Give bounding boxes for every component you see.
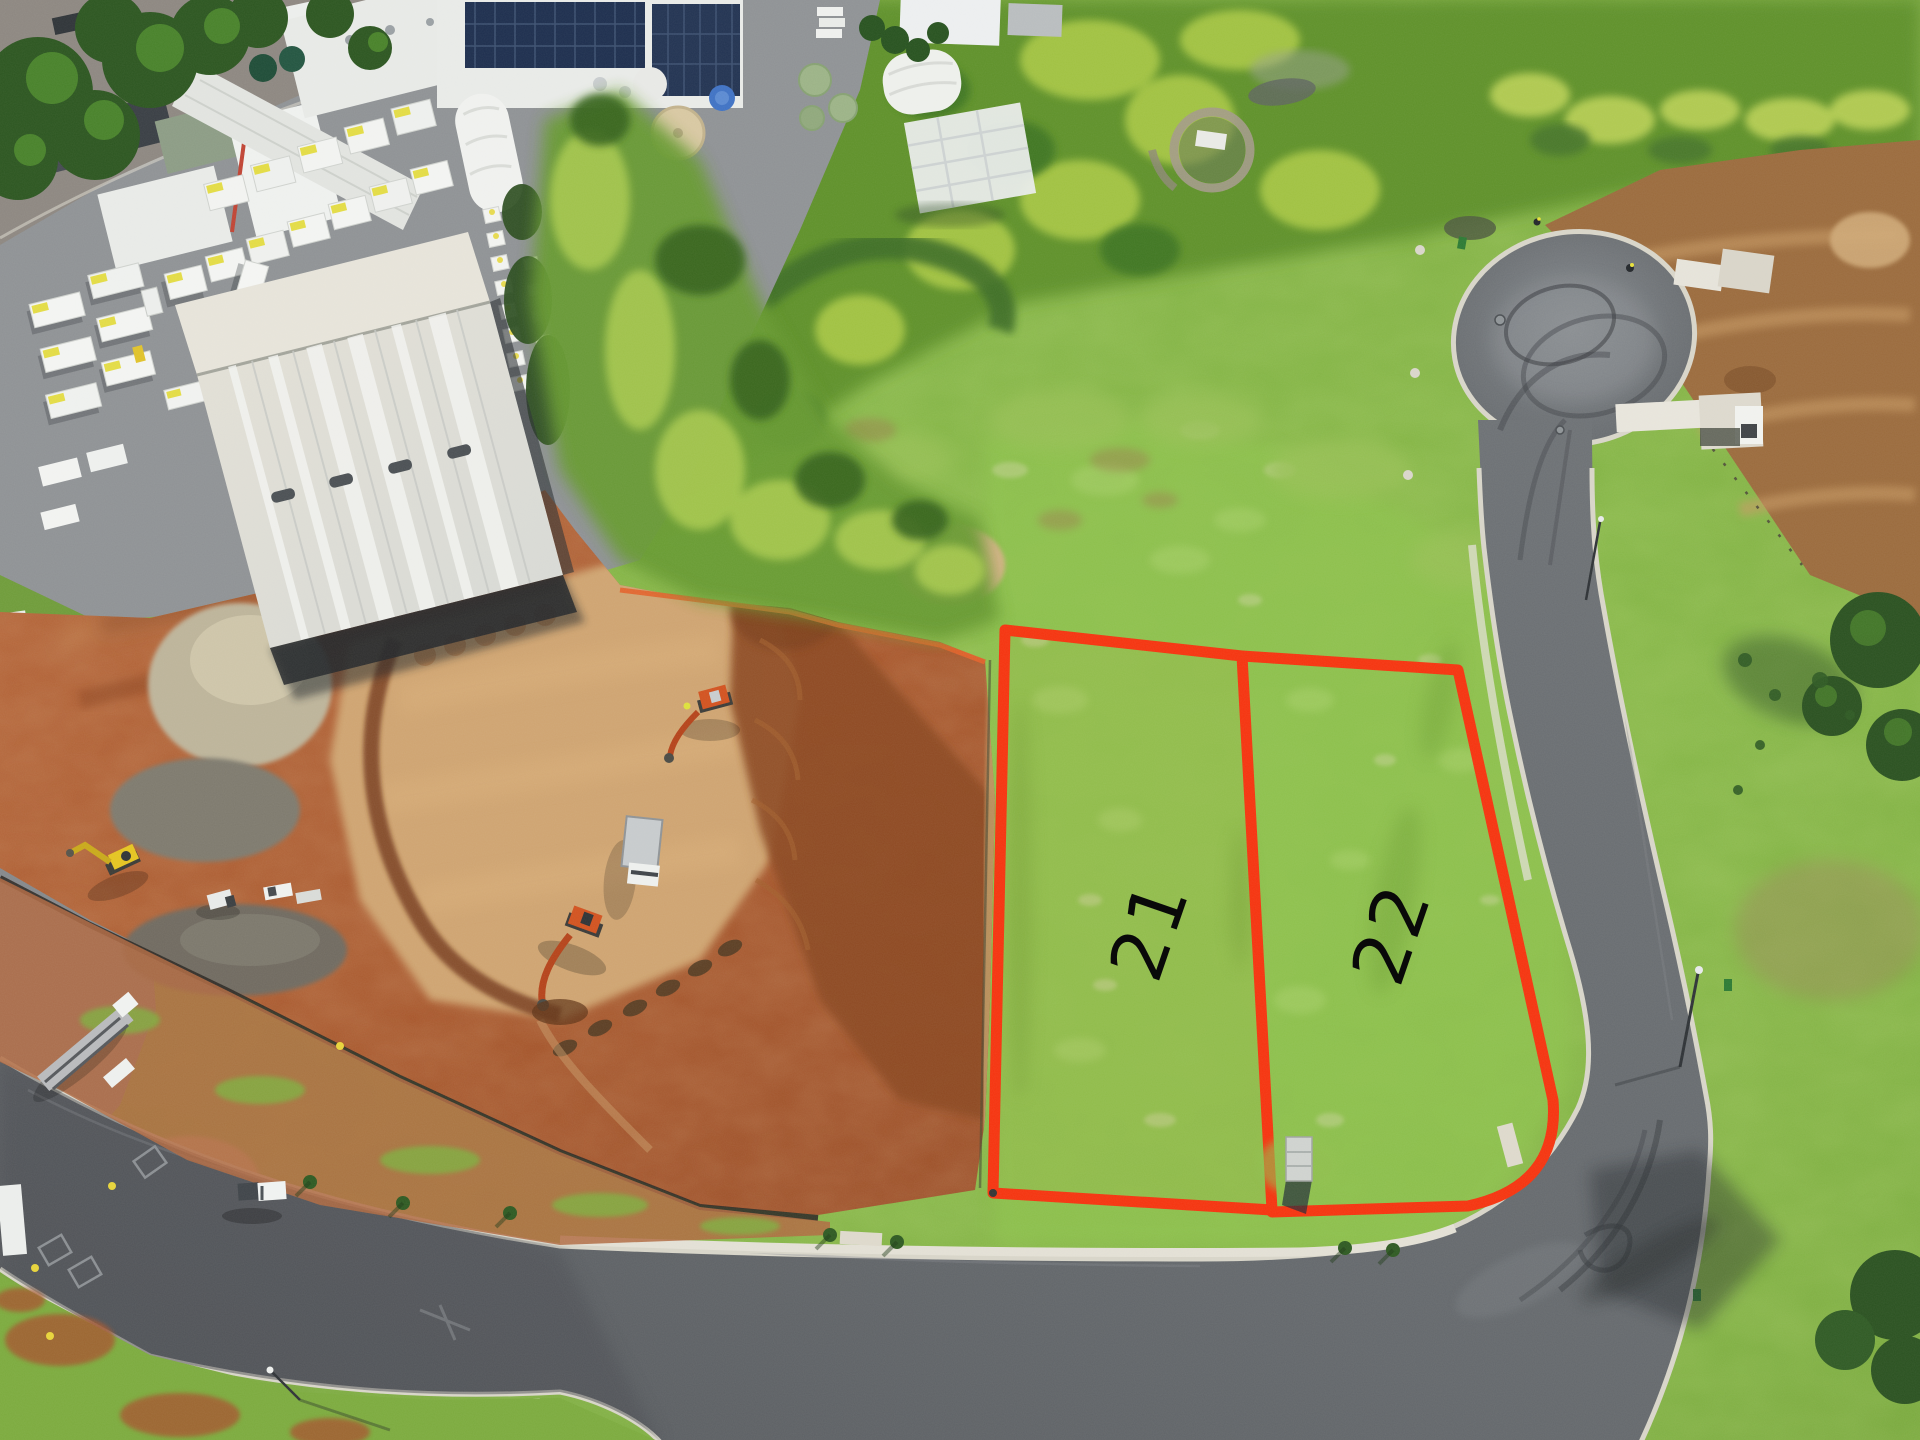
aerial-photo-canvas <box>0 0 1920 1440</box>
photo-grain <box>0 0 1920 1440</box>
aerial-photo: 21 22 <box>0 0 1920 1440</box>
